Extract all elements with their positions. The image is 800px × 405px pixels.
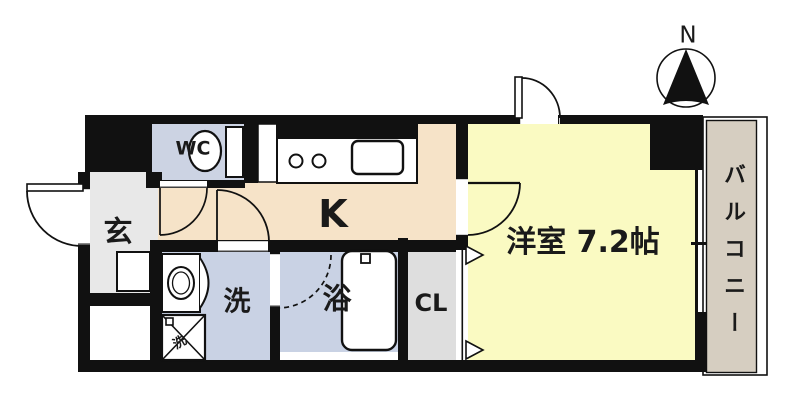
stove-burner-right [313, 155, 326, 168]
wall-room-left-upper [456, 124, 468, 180]
room-label-closet: CL [415, 291, 448, 315]
opening-washroom-door-line-top [218, 240, 268, 241]
closet-door-line [462, 250, 464, 360]
wall-entrance-corner [146, 172, 162, 188]
kitchen-counter-back [277, 123, 417, 139]
floorplan: N WC K 玄 洗 浴 CL 洋室 7.2帖 バルコニー 洗 [0, 0, 800, 405]
opening-room-door-line-top [456, 178, 468, 179]
room-label-washroom: 洗 [224, 289, 251, 316]
refrigerator-space [258, 124, 277, 182]
opening-top-door-jamb-right [558, 115, 559, 124]
wall-below-window [695, 312, 707, 372]
wall-bath-closet-divider [398, 238, 408, 372]
room-label-balcony: バルコニー [721, 163, 743, 348]
opening-bath-door [270, 253, 280, 307]
kitchen-sink [352, 141, 403, 174]
compass-needle [663, 49, 709, 105]
room-label-bathroom: 浴 [322, 285, 351, 314]
opening-bath-door-line-top [270, 253, 280, 254]
compass-north-label: N [679, 25, 696, 48]
wall-bottom [80, 360, 707, 372]
entrance-door-leaf [27, 184, 83, 191]
wall-pipe-space-right [150, 240, 162, 372]
wall-pipe-space-top [80, 293, 162, 306]
room-label-kitchen: K [318, 195, 347, 233]
wall-hall-washroom [162, 240, 458, 252]
room-label-entrance: 玄 [103, 218, 132, 247]
bathtub-tap [361, 254, 370, 263]
opening-room-door [456, 178, 468, 236]
entrance-door-arc [27, 191, 83, 246]
opening-washroom-door-line-bottom [218, 251, 268, 252]
room-label-wc: WC [176, 140, 211, 159]
room-label-western-room: 洋室 7.2帖 [506, 228, 660, 258]
top-door-leaf [515, 77, 522, 118]
washing-machine-tap [166, 318, 173, 325]
opening-entrance [78, 188, 90, 245]
opening-top-door [519, 115, 560, 124]
opening-room-door-line-bottom [456, 235, 468, 236]
window-center-tick [691, 242, 707, 245]
opening-wc-door-line-bottom [160, 187, 207, 188]
opening-washroom-door [218, 240, 268, 252]
wall-wc-bottom-right [207, 180, 245, 188]
opening-entrance-jamb-bottom [78, 244, 90, 245]
window-inner-line [695, 170, 698, 312]
wall-pillar-top-right [650, 115, 703, 170]
pipe-space-void [90, 306, 150, 360]
opening-wc-door-line-top [160, 180, 207, 181]
floorplan-drawing [0, 0, 800, 405]
bathroom-bottom-strip [280, 352, 398, 360]
shoe-cabinet [117, 252, 150, 291]
opening-bath-door-line-bottom [270, 306, 280, 307]
wall-wc-kitchen-divider [244, 122, 258, 183]
stove-burner-left [290, 155, 303, 168]
toilet-tank [226, 127, 243, 177]
top-door-arc [522, 78, 560, 118]
